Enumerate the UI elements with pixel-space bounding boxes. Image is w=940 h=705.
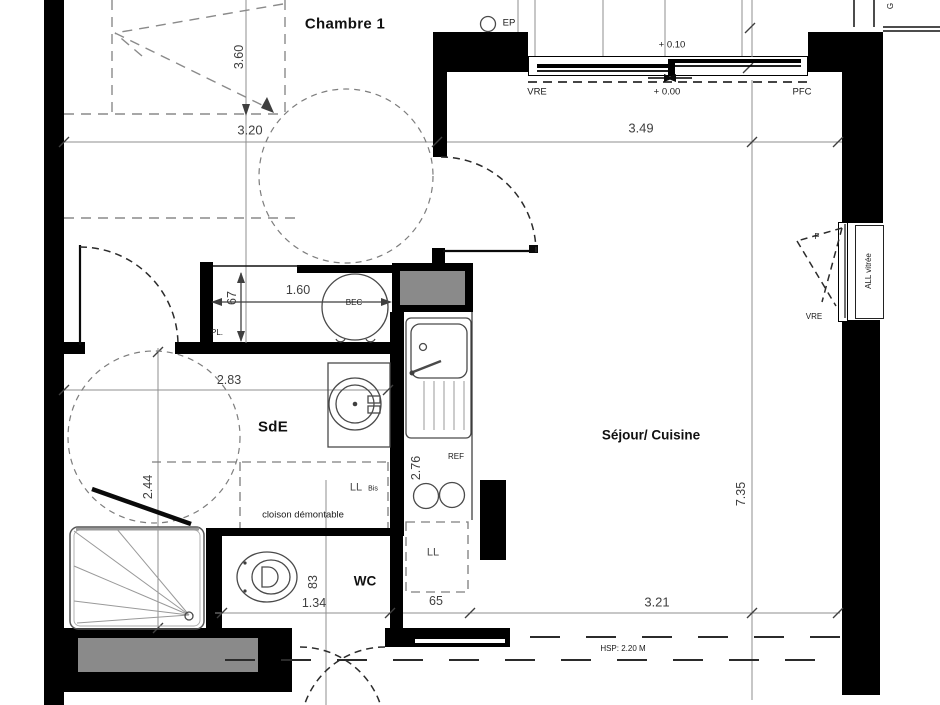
- plan-linework: [0, 0, 940, 705]
- door-sde: [80, 245, 178, 345]
- dim-2-44: 2.44: [142, 475, 155, 499]
- hsp-boundary: [225, 637, 840, 660]
- label-pfc: PFC: [793, 87, 812, 97]
- shower: [70, 489, 204, 629]
- turning-circle-chambre: [259, 89, 433, 263]
- room-label-sde: SdE: [258, 420, 288, 435]
- label-g: G: [887, 3, 895, 9]
- wall-wc-left: [206, 528, 222, 628]
- dim-3-60: 3.60: [233, 45, 246, 69]
- wall-right-upper: [842, 72, 883, 223]
- dim-83: 83: [307, 575, 320, 589]
- dim-1-60: 1.60: [286, 284, 310, 297]
- wall-entry: [385, 628, 510, 647]
- room-label-chambre: Chambre 1: [305, 17, 385, 32]
- chambre-furniture-dashed: [64, 0, 295, 218]
- room-label-wc: WC: [354, 574, 377, 588]
- wall-sde-top: [175, 342, 398, 354]
- label-f: F: [815, 233, 820, 241]
- label-all-vitree: ALL vitrée: [865, 253, 873, 289]
- wall-right-lower: [842, 320, 880, 695]
- dimension-ticks: [59, 23, 843, 633]
- dim-3-21: 3.21: [644, 596, 669, 609]
- dim-1-34: 1.34: [302, 597, 326, 610]
- floor-plan: Chambre 1 SdE WC Séjour/ Cuisine 3.60 3.…: [0, 0, 940, 705]
- dim-3-49: 3.49: [628, 122, 653, 135]
- sliding-bay-window-mid-jamb: [668, 59, 675, 75]
- dim-2-83: 2.83: [217, 374, 241, 387]
- label-bec: BEC: [346, 299, 362, 307]
- hotplates: [414, 483, 465, 509]
- entry-door-leaf: [415, 639, 505, 643]
- label-ll: LL: [427, 548, 439, 559]
- wall-wc-top: [213, 528, 403, 536]
- right-window-frame: [838, 222, 848, 322]
- label-ep: EP: [503, 18, 516, 28]
- washbasin: [328, 363, 390, 447]
- duct-shaft-kitchen: [400, 271, 465, 305]
- dim-67: 67: [226, 291, 239, 305]
- label-level-10: + 0.10: [659, 40, 686, 50]
- label-level-0: + 0.00: [654, 87, 681, 97]
- dim-7-35: 7.35: [735, 482, 748, 506]
- note-hsp: HSP: 2.20 M: [600, 645, 645, 653]
- wall-left: [44, 0, 64, 705]
- furniture-arrowhead: [261, 97, 274, 113]
- kitchen-sink: [406, 312, 472, 520]
- note-cloison: cloison démontable: [262, 510, 344, 520]
- dim-65: 65: [429, 595, 443, 608]
- ep-pipe-icon: [481, 17, 496, 32]
- wall-sde-door-jamb: [64, 342, 85, 354]
- door-entry: [300, 647, 385, 705]
- wall-sejour-topright-block: [808, 32, 883, 72]
- toilet: [237, 552, 297, 602]
- partition-dashed: [152, 462, 468, 592]
- label-vre-right: VRE: [806, 313, 822, 321]
- label-ref: REF: [448, 453, 464, 461]
- door-jamb-sejour: [432, 248, 445, 265]
- door-chambre-sejour: [441, 157, 538, 253]
- label-vre-top: VRE: [527, 87, 547, 97]
- dim-3-20: 3.20: [237, 124, 262, 137]
- wall-sejour-topleft-block: [433, 32, 528, 72]
- wall-closet-top: [297, 265, 398, 273]
- label-pl: PL.: [211, 329, 223, 337]
- room-label-sejour: Séjour/ Cuisine: [602, 428, 700, 442]
- wall-kitchen-pillar: [480, 480, 506, 560]
- wall-wc-right: [390, 536, 403, 628]
- water-heater-bec: [322, 274, 388, 342]
- wall-kitchen-left: [390, 312, 404, 536]
- label-ll-bis-suffix: Bis: [368, 486, 378, 493]
- duct-shaft-bottom: [78, 638, 258, 672]
- label-ll-bis: LL: [350, 483, 362, 494]
- dim-2-76: 2.76: [410, 456, 423, 480]
